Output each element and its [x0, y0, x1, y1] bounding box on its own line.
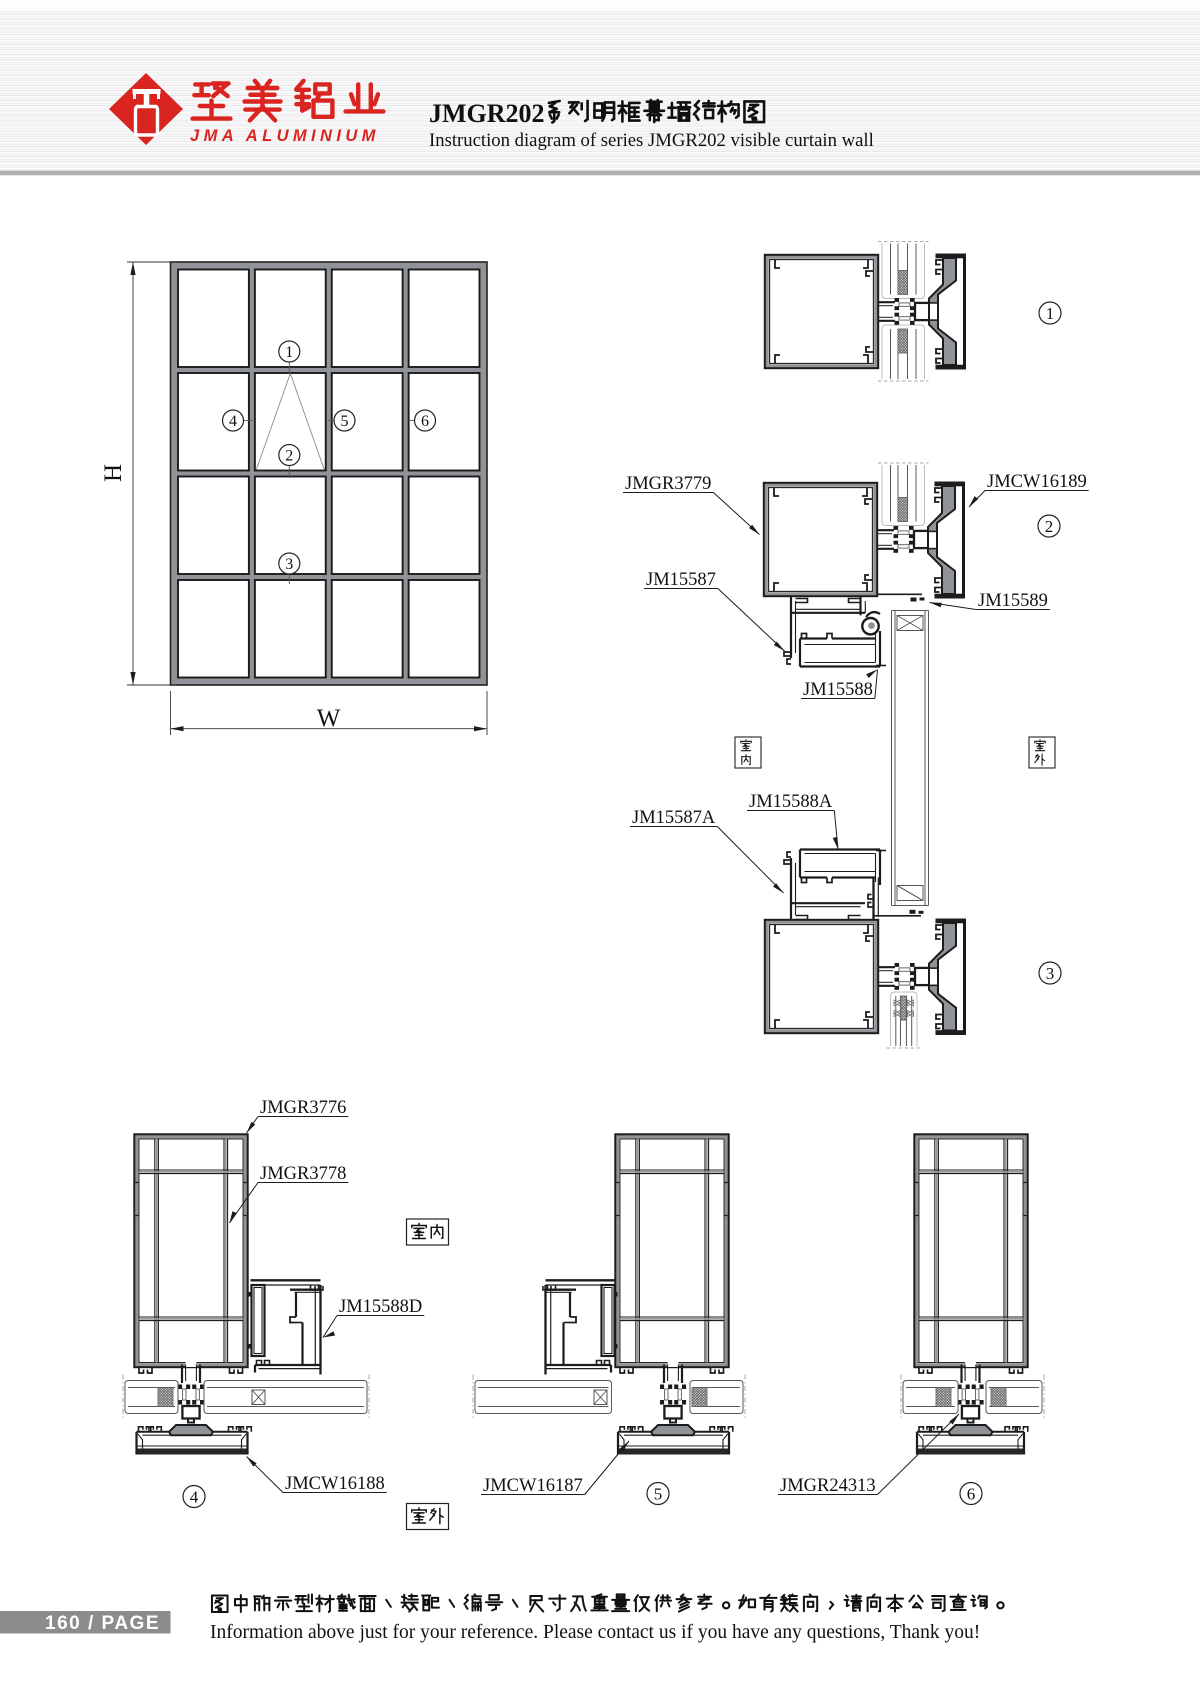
svg-text:6: 6	[421, 413, 429, 430]
svg-text:2: 2	[1045, 517, 1054, 536]
svg-text:1: 1	[1046, 304, 1055, 323]
svg-text:JMGR202: JMGR202	[429, 99, 545, 128]
svg-text:Information above just for you: Information above just for your referenc…	[210, 1622, 980, 1643]
svg-text:5: 5	[341, 413, 349, 430]
svg-text:JMCW16187: JMCW16187	[483, 1476, 583, 1496]
svg-text:JMGR3778: JMGR3778	[260, 1164, 346, 1184]
svg-text:JMA ALUMINIUM: JMA ALUMINIUM	[190, 127, 380, 145]
svg-text:1: 1	[285, 344, 293, 361]
svg-text:3: 3	[1046, 964, 1055, 983]
svg-text:JM15587A: JM15587A	[632, 808, 716, 828]
svg-text:6: 6	[967, 1484, 976, 1503]
svg-text:JMGR3776: JMGR3776	[260, 1098, 346, 1118]
svg-text:JMCW16189: JMCW16189	[987, 472, 1087, 492]
svg-text:4: 4	[229, 413, 237, 430]
svg-text:JM15587: JM15587	[646, 570, 716, 590]
svg-text:W: W	[317, 705, 341, 732]
svg-text:JMCW16188: JMCW16188	[285, 1474, 385, 1494]
svg-text:2: 2	[285, 448, 293, 465]
svg-text:JMGR3779: JMGR3779	[625, 474, 711, 494]
svg-text:4: 4	[190, 1487, 199, 1506]
svg-text:H: H	[100, 464, 127, 482]
svg-text:Instruction diagram of series: Instruction diagram of series JMGR202 vi…	[429, 130, 874, 151]
svg-text:JM15589: JM15589	[978, 591, 1048, 611]
svg-text:JM15588: JM15588	[803, 680, 873, 700]
svg-text:JM15588A: JM15588A	[749, 792, 833, 812]
svg-text:5: 5	[654, 1484, 663, 1503]
svg-text:JM15588D: JM15588D	[339, 1297, 422, 1317]
svg-text:JMGR24313: JMGR24313	[780, 1476, 876, 1496]
svg-text:160 / PAGE: 160 / PAGE	[45, 1613, 160, 1634]
svg-text:3: 3	[285, 556, 293, 573]
